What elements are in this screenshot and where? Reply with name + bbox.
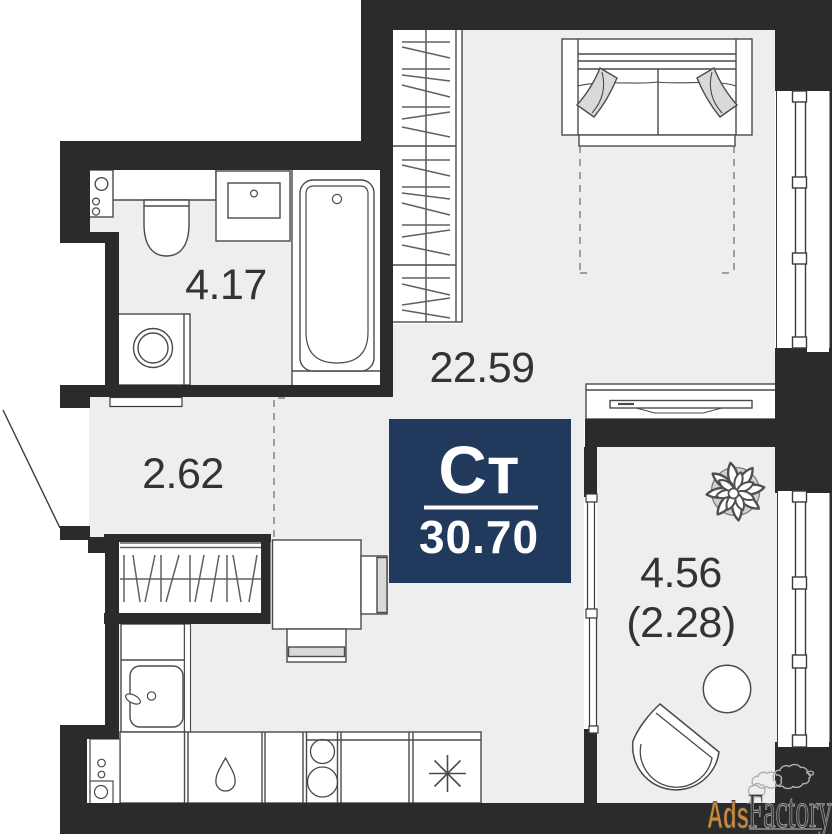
svg-text:4.56: 4.56 bbox=[640, 549, 722, 597]
svg-text:30.70: 30.70 bbox=[419, 511, 539, 563]
svg-text:(2.28): (2.28) bbox=[626, 599, 735, 647]
svg-text:2.62: 2.62 bbox=[142, 450, 224, 498]
svg-text:22.59: 22.59 bbox=[429, 344, 534, 392]
svg-text:Factory: Factory bbox=[748, 782, 832, 834]
svg-text:Ст: Ст bbox=[438, 433, 519, 508]
svg-text:4.17: 4.17 bbox=[185, 261, 267, 309]
svg-text:Ads: Ads bbox=[707, 795, 749, 834]
